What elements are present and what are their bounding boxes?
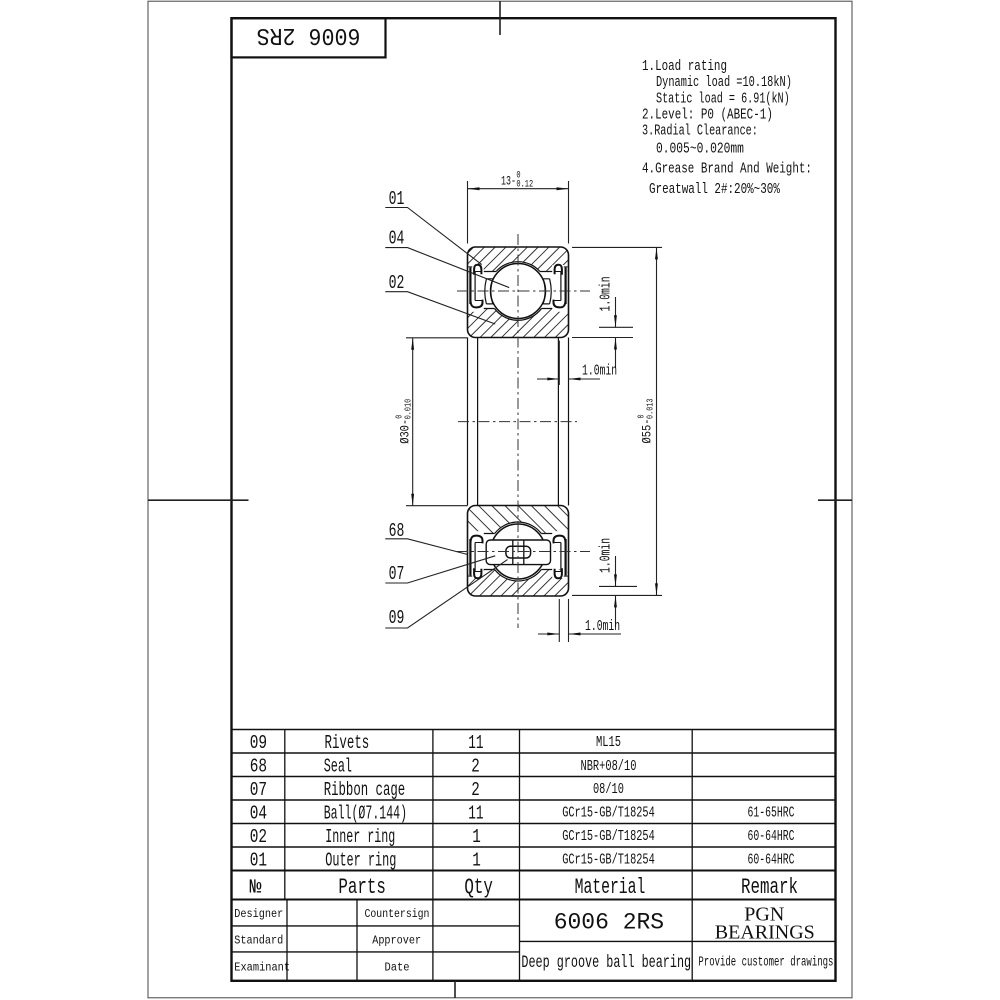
svg-text:02: 02: [389, 272, 405, 294]
svg-text:61-65HRC: 61-65HRC: [748, 805, 795, 821]
svg-text:04: 04: [250, 804, 267, 825]
svg-text:Deep groove ball bearing: Deep groove ball bearing: [521, 954, 691, 973]
svg-text:GCr15-GB/T18254: GCr15-GB/T18254: [562, 805, 655, 821]
svg-text:11: 11: [468, 733, 483, 754]
svg-text:Ribbon cage: Ribbon cage: [324, 779, 405, 800]
svg-text:0.005~0.020mm: 0.005~0.020mm: [656, 141, 744, 158]
svg-text:60-64HRC: 60-64HRC: [748, 852, 795, 868]
svg-text:0.12: 0.12: [516, 178, 533, 190]
svg-text:ML15: ML15: [596, 734, 621, 751]
svg-text:№: №: [250, 876, 262, 899]
svg-text:Greatwall 2#:20%~30%: Greatwall 2#:20%~30%: [649, 180, 780, 197]
svg-text:Provide customer drawings: Provide customer drawings: [698, 955, 833, 970]
svg-text:GCr15-GB/T18254: GCr15-GB/T18254: [562, 852, 655, 868]
svg-text:Material: Material: [575, 874, 646, 900]
svg-text:01: 01: [250, 851, 267, 872]
svg-text:09: 09: [389, 607, 405, 629]
svg-text:0.013: 0.013: [645, 398, 655, 419]
svg-text:0.010: 0.010: [403, 399, 413, 420]
svg-text:3.Radial Clearance:: 3.Radial Clearance:: [642, 122, 758, 140]
svg-text:1: 1: [472, 851, 481, 872]
svg-text:Approver: Approver: [372, 935, 421, 948]
svg-text:Remark: Remark: [741, 875, 798, 900]
svg-text:01: 01: [389, 188, 405, 210]
svg-text:11: 11: [468, 803, 483, 824]
svg-text:60-64HRC: 60-64HRC: [748, 828, 795, 844]
svg-text:Rivets: Rivets: [325, 732, 370, 753]
svg-text:07: 07: [250, 780, 267, 801]
svg-text:1.0min: 1.0min: [597, 276, 615, 311]
svg-text:GCr15-GB/T18254: GCr15-GB/T18254: [562, 829, 655, 845]
svg-text:1.0min: 1.0min: [597, 538, 615, 573]
svg-text:Static load = 6.91(kN): Static load = 6.91(kN): [656, 90, 790, 108]
svg-text:13-: 13-: [501, 175, 516, 189]
svg-text:Inner ring: Inner ring: [325, 826, 395, 848]
svg-text:6006 2RS: 6006 2RS: [257, 22, 361, 50]
svg-text:1: 1: [472, 827, 481, 848]
svg-text:6006 2RS: 6006 2RS: [554, 910, 664, 936]
svg-text:2.Level: P0 (ABEC-1): 2.Level: P0 (ABEC-1): [642, 106, 773, 123]
svg-text:Countersign: Countersign: [365, 908, 430, 921]
svg-text:Examinant: Examinant: [234, 962, 290, 975]
svg-text:07: 07: [389, 563, 405, 585]
svg-text:Seal: Seal: [324, 756, 352, 778]
svg-text:Standard: Standard: [234, 935, 283, 948]
svg-text:Ball(Ø7.144): Ball(Ø7.144): [324, 803, 407, 825]
svg-text:68: 68: [250, 757, 267, 778]
svg-text:Ø55-: Ø55-: [639, 419, 654, 444]
svg-text:08/10: 08/10: [593, 782, 624, 798]
svg-text:09: 09: [250, 733, 267, 754]
svg-text:Qty: Qty: [464, 875, 493, 900]
svg-text:Date: Date: [385, 962, 410, 975]
svg-text:02: 02: [250, 827, 267, 848]
svg-text:2: 2: [471, 757, 480, 778]
svg-text:Dynamic load =10.18kN): Dynamic load =10.18kN): [656, 73, 792, 91]
svg-text:Parts: Parts: [338, 875, 386, 900]
svg-text:Ø30-: Ø30-: [397, 419, 412, 444]
svg-text:1.0min: 1.0min: [582, 361, 617, 379]
svg-text:04: 04: [389, 227, 405, 249]
svg-text:Designer: Designer: [234, 909, 283, 922]
svg-text:1.0min: 1.0min: [585, 617, 620, 635]
svg-text:2: 2: [471, 780, 480, 801]
svg-text:Outer ring: Outer ring: [325, 850, 396, 872]
svg-text:4.Grease Brand And Weight:: 4.Grease Brand And Weight:: [642, 160, 812, 177]
svg-text:BEARINGS: BEARINGS: [715, 922, 815, 944]
svg-text:1.Load rating: 1.Load rating: [642, 57, 727, 74]
svg-text:NBR+08/10: NBR+08/10: [581, 758, 637, 774]
